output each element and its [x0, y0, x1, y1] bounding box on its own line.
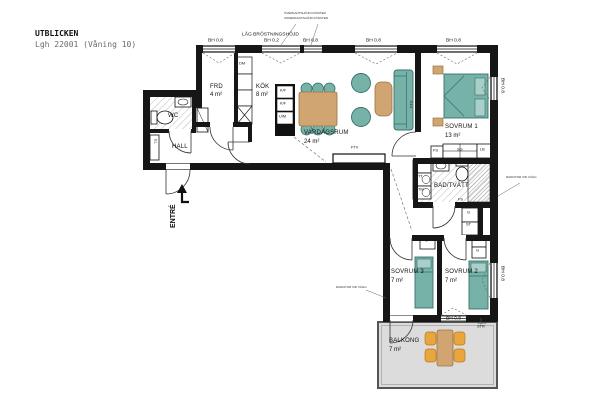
label-ftv-vardagsrum: FTV: [351, 146, 358, 150]
window: [304, 46, 322, 53]
tv-parapet-ftv: [333, 154, 385, 163]
label-el: EL: [153, 139, 157, 144]
label-ftv-wall-right: FTV: [417, 101, 421, 108]
balcony-chair: [425, 332, 436, 345]
dining-table: [299, 92, 337, 126]
door-opening-sovrum2: [444, 235, 466, 241]
bed-pillow: [475, 99, 485, 116]
label-kf1: K/F: [280, 89, 286, 93]
label-g-sovrum3: G: [425, 239, 428, 243]
nightstand: [433, 118, 443, 126]
door-swing-sovrum2: [444, 238, 466, 260]
page: UTBLICKEN Lgh 22001 (Våning 10): [0, 0, 600, 400]
label-frd: FRD: [210, 84, 223, 90]
label-sg: SG: [457, 148, 463, 152]
ceiling-dash-corridor: [391, 169, 412, 231]
label-bh-w2: BH 0.2: [264, 38, 279, 43]
wc-sink: [175, 97, 191, 107]
label-entre: ENTRÉ: [170, 204, 177, 228]
door-swing-frd: [210, 127, 233, 150]
door-swing-bathroom: [433, 206, 455, 228]
balcony-chair: [454, 349, 465, 362]
label-hall: HALL: [172, 144, 188, 150]
armchair: [352, 74, 371, 93]
wall-wc-bottom-a: [143, 129, 169, 133]
label-tm: TM: [418, 188, 424, 192]
door-swing-entry: [166, 170, 190, 194]
label-radiator-vanster: RADIATOR VID VÄGG: [336, 286, 367, 289]
label-bad-tvatt: BAD/TVÄTT: [434, 183, 469, 189]
window: [491, 77, 498, 100]
wall-bathroom-left: [413, 158, 418, 208]
window-low-sill: [262, 46, 300, 53]
kitchen-counter: [237, 74, 252, 90]
label-vardagsrum: VARDAGSRUM: [304, 130, 349, 136]
balcony-chair: [425, 349, 436, 362]
label-bh-w7: BH 0.8: [500, 266, 505, 281]
label-balkong: BALKONG: [389, 338, 419, 344]
label-kok: KÖK: [256, 84, 269, 90]
label-bh-w6: BH 0.8: [500, 78, 505, 93]
label-ftv-wall-left: FTV: [410, 101, 414, 108]
label-um: U/M: [279, 115, 286, 119]
window: [437, 46, 477, 53]
label-bh-w3: BH 0.8: [303, 38, 318, 43]
label-ann-top-1: ÖVERKANTSHÖJD FÖNSTER: [284, 12, 326, 15]
label-radiator-hoger: RADIATOR VID VÄGG: [506, 176, 537, 179]
wall-sovrum1-left: [415, 52, 421, 132]
bed-pillow: [475, 78, 485, 95]
wc-toilet-tank: [151, 111, 157, 124]
label-sovrum2-area: 7 m²: [445, 278, 457, 284]
label-bh-w1: BH 0.8: [208, 38, 223, 43]
door-swing-sovrum3: [390, 238, 412, 260]
door-opening-entry: [166, 164, 190, 170]
wall-bedroom-divider: [437, 235, 442, 315]
window-swing-dash: [437, 53, 477, 64]
window-swing-dash: [262, 53, 300, 63]
door-opening-sovrum3: [390, 235, 412, 241]
window-swing-dash: [355, 53, 397, 64]
door-opening-bathroom: [433, 202, 455, 208]
label-str: STR: [477, 325, 485, 329]
door-opening-balcony: [390, 316, 413, 322]
entry-arrow-head: [177, 184, 187, 193]
coffee-table: [375, 82, 392, 116]
label-wc: WC: [168, 113, 178, 119]
window: [203, 46, 235, 53]
wall-kitchen-stub: [248, 122, 252, 142]
entry-arrow-shaft: [182, 192, 189, 202]
label-bh-w8: BH 0.8: [446, 316, 461, 321]
door-swing-kitchen-passage: [228, 142, 250, 164]
leader-radiator-right: [498, 183, 520, 196]
window-swing-dash: [203, 53, 235, 63]
label-lb: LB: [480, 148, 485, 152]
label-st: ST: [466, 223, 471, 227]
label-kf2: K/F: [280, 102, 286, 106]
label-fs-bad-2: FS: [458, 198, 463, 202]
label-tt: TT: [418, 175, 423, 179]
nightstand: [433, 66, 443, 74]
door-opening-sovrum1: [415, 132, 421, 158]
window: [355, 46, 397, 53]
balcony-chair: [454, 332, 465, 345]
floor-plan: UTBLICKEN Lgh 22001 (Våning 10): [0, 0, 600, 400]
window: [491, 263, 498, 298]
label-fs-sovrum1: FS: [433, 149, 438, 153]
label-balkong-area: 7 m²: [389, 347, 401, 353]
balcony: [378, 322, 497, 388]
label-ann-top-2: UNDERKANTSHÖJD FÖNSTER: [284, 17, 328, 20]
door-swing-sovrum1: [392, 132, 416, 156]
armchair: [352, 108, 371, 127]
label-bh-w5: BH 0.8: [446, 38, 461, 43]
label-sovrum2: SOVRUM 2: [445, 269, 478, 275]
label-dm: DM: [239, 62, 245, 66]
balcony-table: [437, 330, 453, 366]
wall-bathroom-bottom: [413, 202, 498, 208]
wall-frd-right: [234, 52, 238, 122]
label-vardagsrum-area: 24 m²: [304, 139, 319, 145]
label-sovrum1-area: 13 m²: [445, 133, 460, 139]
label-frd-area: 4 m²: [210, 92, 222, 98]
entry-arrow-icon: [177, 184, 189, 202]
wall-wc-bottom-b: [191, 129, 196, 133]
label-g-korridor: G: [467, 211, 470, 215]
label-bh-w4: BH 0.8: [366, 38, 381, 43]
wall-frd-left: [196, 52, 202, 108]
label-kok-area: 8 m²: [256, 92, 268, 98]
kitchen-counter: [237, 90, 252, 106]
bathroom-toilet-bowl: [456, 167, 468, 181]
window-swing-dash: [441, 308, 466, 315]
bed-pillow: [417, 259, 431, 268]
wall-under-sovrum1: [415, 158, 498, 164]
shower-hatch: [468, 160, 490, 202]
wall-wc-top: [143, 90, 196, 97]
label-lag-brostningshojd: LÅG BRÖSTNINGSHÖJD: [242, 32, 299, 37]
label-sovrum3-area: 7 m²: [391, 278, 403, 284]
door-opening-frd: [210, 122, 233, 127]
label-sovrum1: SOVRUM 1: [445, 124, 478, 130]
wall-wardrobe: [478, 208, 483, 235]
label-fs-bad-1: FS: [420, 203, 425, 207]
label-g-sovrum2-2: G: [476, 249, 479, 253]
label-g-sovrum2-1: G: [476, 238, 479, 242]
wall-wc-right: [192, 90, 196, 131]
floor-plan-svg: [0, 0, 600, 400]
label-sovrum3: SOVRUM 3: [391, 269, 424, 275]
